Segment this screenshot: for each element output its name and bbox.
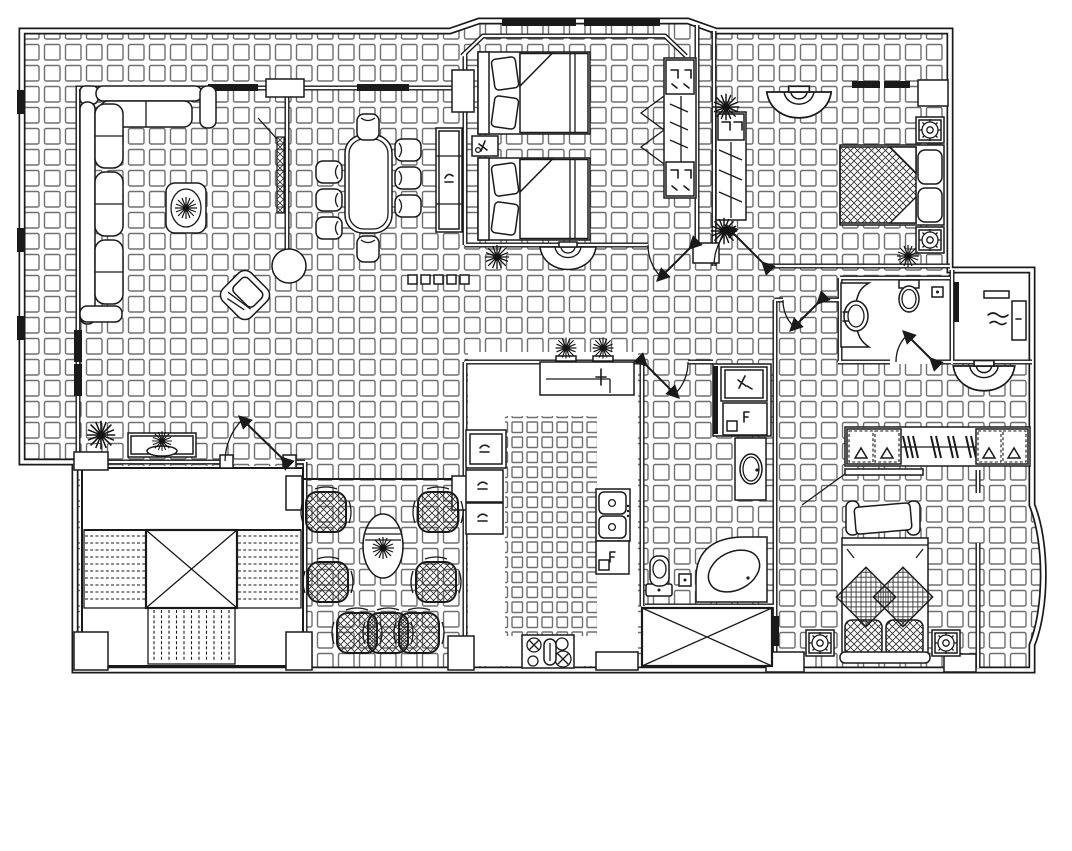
coffee-table-with-plant [166,183,206,233]
floor-plan-sheet: Residential apartment floor plan - CAD l… [0,0,1072,851]
kitchen-cabinets [466,430,506,534]
toilet [899,280,919,312]
bedside-lamp-table [932,630,960,656]
bedside-lamp-table [806,630,834,656]
kitchen-pass-counter [540,356,634,395]
wash-basin-counter [735,438,766,500]
cooktop-4-burner [522,635,574,668]
potted-plant [593,338,614,359]
round-column [272,249,306,283]
bedside-lamp-table [916,117,944,143]
service-shaft-x [642,608,772,666]
double-sink [596,489,630,541]
washing-machine-units [713,364,771,436]
kitchen-dense-tiles [505,416,597,636]
floor-drain [932,287,943,297]
potted-plant [897,245,919,267]
bedside-lamp-table [916,227,944,253]
floor-plan-drawing: Residential apartment floor plan - CAD l… [0,0,1072,851]
sink-cabinet [596,541,629,574]
twin-bed-1 [478,52,590,134]
oval-tea-table-with-plant [363,514,403,578]
toilet [646,556,672,596]
master-bed-diamond-pillows [836,538,932,663]
floor-drain [679,574,691,586]
double-bed-crosshatch [840,145,944,225]
hall-low-cabinet-squares [408,275,469,284]
potted-plant [556,338,577,359]
potted-plant [485,245,509,269]
bench [846,501,920,535]
dining-table [345,135,392,233]
potted-plant [711,218,737,244]
stair-core-void-x [146,530,237,608]
potted-plant [713,94,739,120]
console-table [128,431,196,457]
tall-wardrobe [716,112,746,220]
twin-bed-2 [478,158,590,240]
potted-plant [87,421,116,450]
sideboard [436,128,462,232]
nightstand [472,136,498,156]
